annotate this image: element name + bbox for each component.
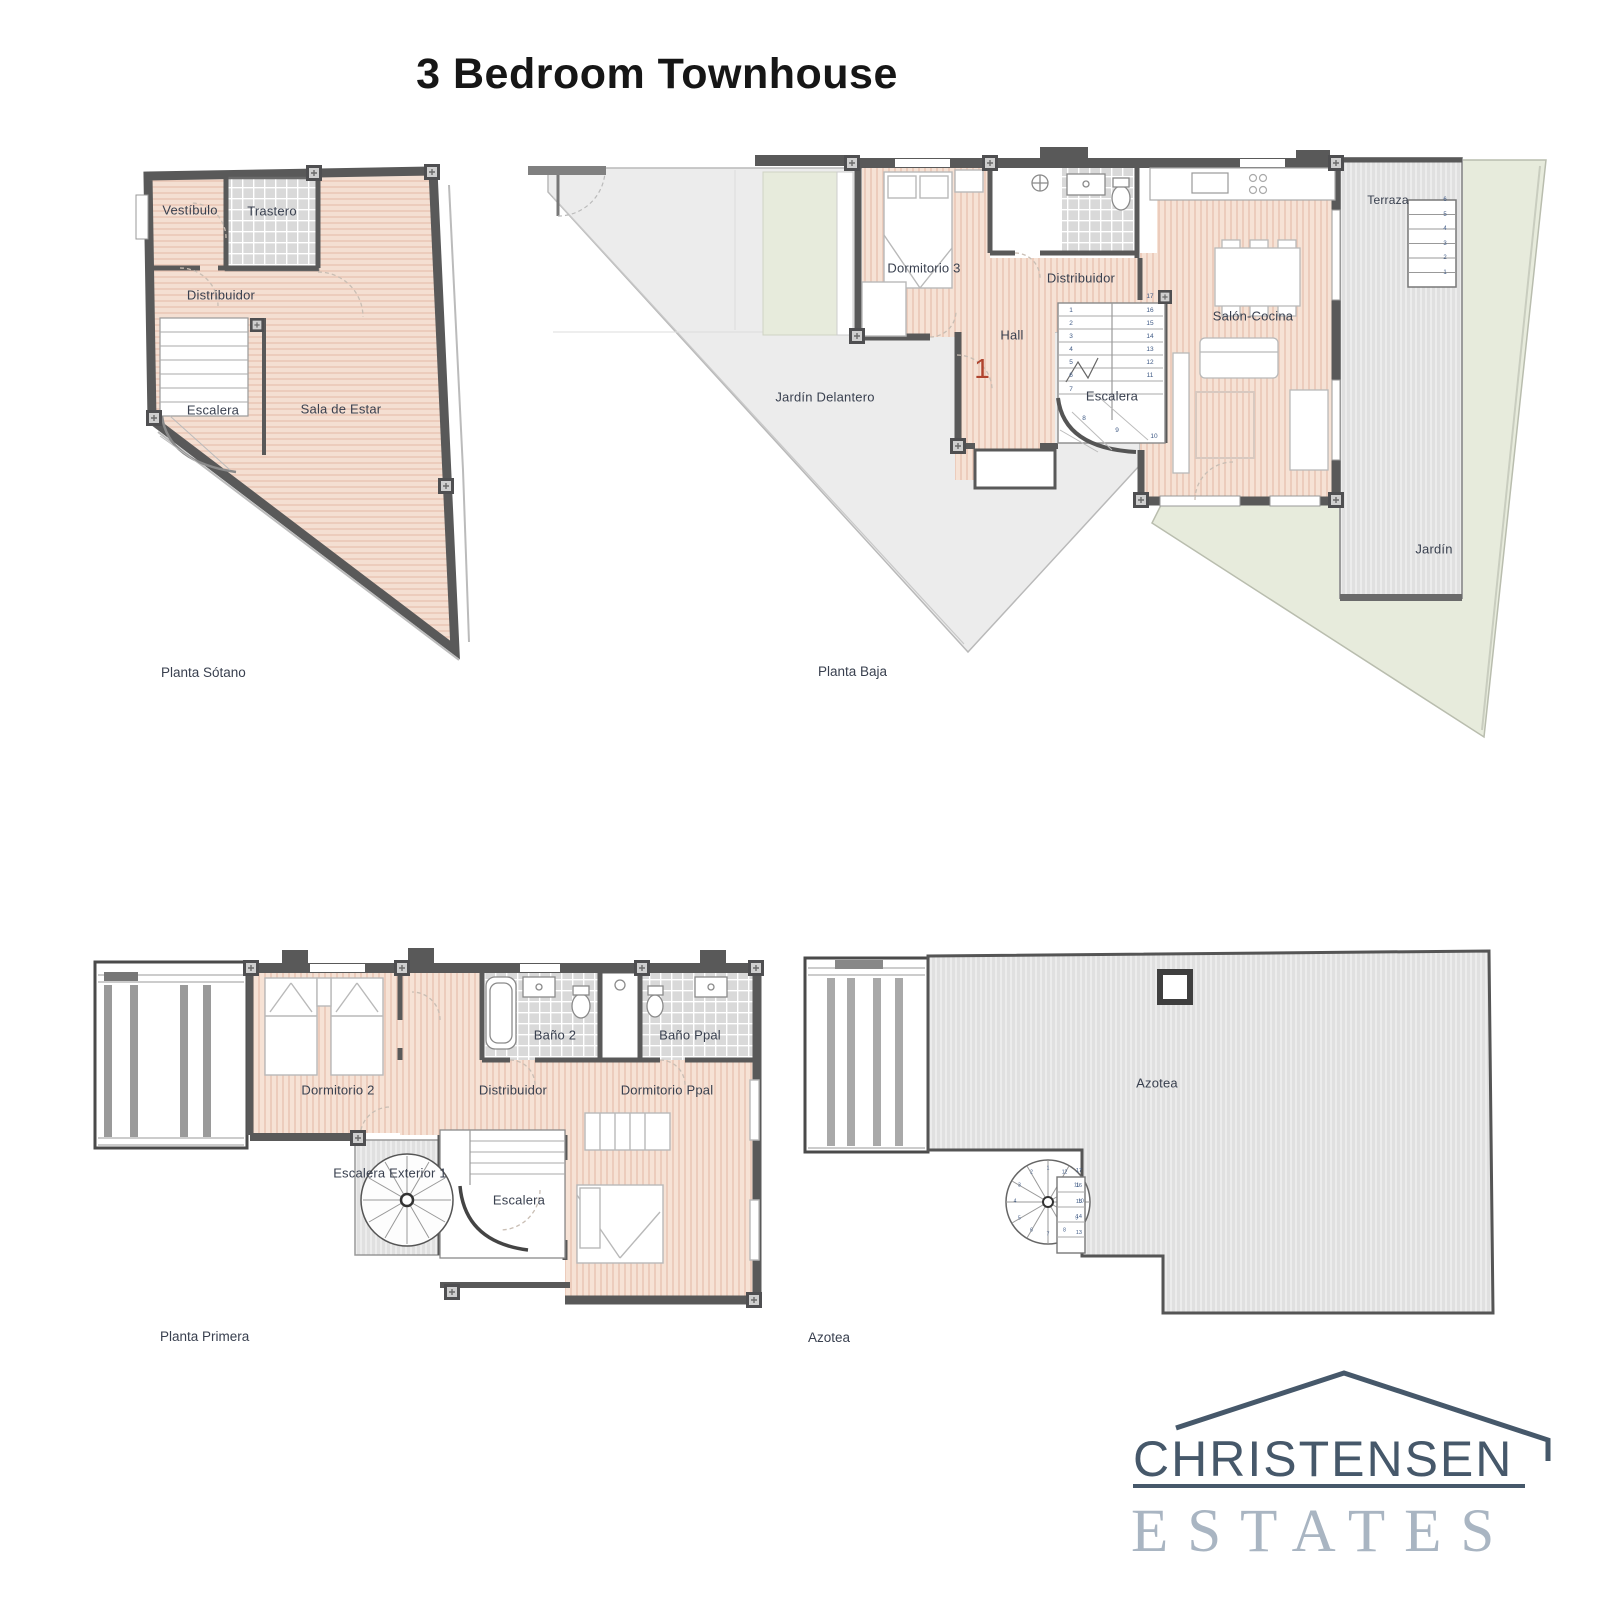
azotea-plan-drawing	[795, 942, 1510, 1327]
baja-dining-set	[1215, 240, 1300, 316]
room-label-azotea: Azotea	[1136, 1076, 1178, 1091]
room-label-salon-cocina: Salón-Cocina	[1213, 309, 1293, 324]
room-label-bano2: Baño 2	[534, 1028, 576, 1043]
baja-stair-number-curve-10: 10	[1150, 434, 1157, 441]
floorplan-sheet: 3 Bedroom Townhouse	[0, 0, 1600, 1600]
baja-porch	[975, 450, 1055, 488]
spiral-step-number: 9	[1075, 1216, 1078, 1221]
step-number: 2	[1443, 255, 1446, 270]
spiral-step-number: 1	[1047, 1167, 1050, 1172]
logo-brand-name: CHRISTENSEN	[1133, 1430, 1533, 1488]
logo-division-name: ESTATES	[1131, 1497, 1531, 1567]
room-label-sala-de-estar: Sala de Estar	[301, 402, 382, 417]
room-label-sotano-escalera: Escalera	[187, 403, 239, 418]
room-label-baja-distribuidor: Distribuidor	[1047, 271, 1115, 286]
room-label-trastero: Trastero	[247, 204, 297, 219]
baja-stair-numbers-left: 1234567	[1064, 308, 1078, 400]
spiral-step-number: 2	[1030, 1171, 1033, 1176]
azotea-deck	[928, 951, 1493, 1313]
room-label-bano-ppal: Baño Ppal	[659, 1028, 721, 1043]
room-label-dormitorio-ppal: Dormitorio Ppal	[621, 1083, 714, 1098]
spiral-step-number: 7	[1047, 1233, 1050, 1238]
spiral-step-number: 12	[1062, 1171, 1068, 1176]
room-label-primera-escalera: Escalera	[493, 1193, 545, 1208]
room-label-jardin-delantero: Jardín Delantero	[775, 390, 874, 405]
azotea-straight-step-numbers: 1716151413	[1064, 1169, 1082, 1246]
step-number: 1	[1443, 270, 1446, 285]
room-label-vestibulo: Vestíbulo	[162, 203, 217, 218]
step-number: 4	[1443, 226, 1446, 241]
step-number: 5	[1443, 212, 1446, 227]
spiral-step-number: 6	[1030, 1228, 1033, 1233]
sotano-plan-drawing	[125, 155, 475, 685]
baja-plan-drawing	[515, 145, 1560, 750]
step-number: 3	[1443, 241, 1446, 256]
spiral-step-number: 10	[1078, 1200, 1084, 1205]
caption-planta-baja: Planta Baja	[818, 664, 887, 679]
baja-stair-number-curve-8: 8	[1082, 416, 1086, 423]
spiral-step-number: 5	[1018, 1216, 1021, 1221]
step-number: 7	[1069, 387, 1073, 400]
spiral-step-number: 8	[1063, 1228, 1066, 1233]
sotano-room-trastero	[226, 178, 318, 270]
step-number: 6	[1443, 197, 1446, 212]
room-label-hall: Hall	[1000, 328, 1023, 343]
azotea-pergola	[805, 958, 928, 1152]
room-label-terraza: Terraza	[1367, 193, 1408, 207]
baja-stair-number-curve-9: 9	[1115, 428, 1119, 435]
baja-stair-number-top: 17	[1146, 294, 1153, 301]
step-number: 6	[1069, 373, 1073, 386]
caption-azotea: Azotea	[808, 1330, 850, 1345]
caption-planta-sotano: Planta Sótano	[161, 665, 246, 680]
room-label-dormitorio3: Dormitorio 3	[887, 261, 960, 276]
room-label-escalera-exterior: Escalera Exterior 1	[333, 1166, 447, 1181]
spiral-step-number: 4	[1014, 1200, 1017, 1205]
primera-plan-drawing	[85, 942, 780, 1352]
page-title: 3 Bedroom Townhouse	[416, 50, 898, 99]
room-label-primera-distribuidor: Distribuidor	[479, 1083, 547, 1098]
baja-green-patch	[763, 172, 853, 335]
unit-number: 1	[974, 353, 990, 385]
spiral-step-number: 3	[1018, 1183, 1021, 1188]
baja-kitchen	[1150, 168, 1335, 200]
room-label-jardin: Jardín	[1415, 542, 1452, 557]
step-number: 13	[1076, 1231, 1082, 1246]
room-label-dormitorio2: Dormitorio 2	[301, 1083, 374, 1098]
caption-planta-primera: Planta Primera	[160, 1329, 249, 1344]
baja-stair-numbers-right: 161514131211	[1143, 308, 1157, 387]
primera-left-structure	[95, 962, 247, 1148]
spiral-step-number: 11	[1074, 1183, 1079, 1188]
logo-divider	[1133, 1484, 1525, 1488]
step-number: 11	[1147, 373, 1154, 386]
terraza-step-numbers: 654321	[1438, 197, 1452, 285]
room-label-baja-escalera: Escalera	[1086, 389, 1138, 404]
room-label-sotano-distribuidor: Distribuidor	[187, 288, 255, 303]
